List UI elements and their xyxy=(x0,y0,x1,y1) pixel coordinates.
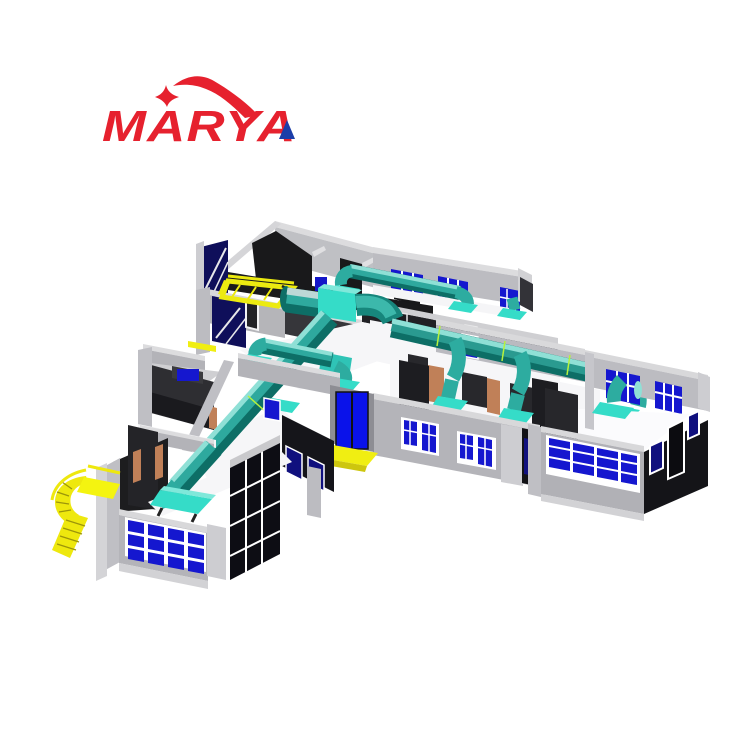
svg-text:MARYA: MARYA xyxy=(102,102,297,151)
